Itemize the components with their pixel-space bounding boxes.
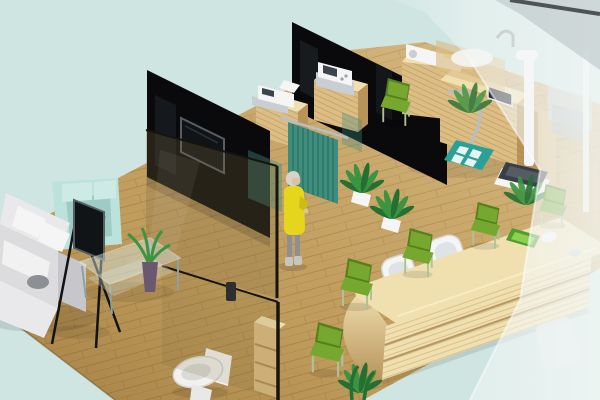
woman-boot [294, 256, 302, 265]
armchair-cushion [62, 182, 92, 202]
woman-boot [285, 257, 293, 266]
scene-canvas [0, 0, 600, 400]
woman-leg [287, 233, 292, 260]
woman-leg [295, 232, 300, 259]
woman-dress [284, 186, 305, 235]
glass-door-handle [226, 282, 236, 301]
armchair-cushion [94, 180, 116, 200]
isometric-clinic-render [0, 0, 600, 400]
woman-hand [304, 209, 309, 214]
gray-bowl [27, 275, 49, 289]
